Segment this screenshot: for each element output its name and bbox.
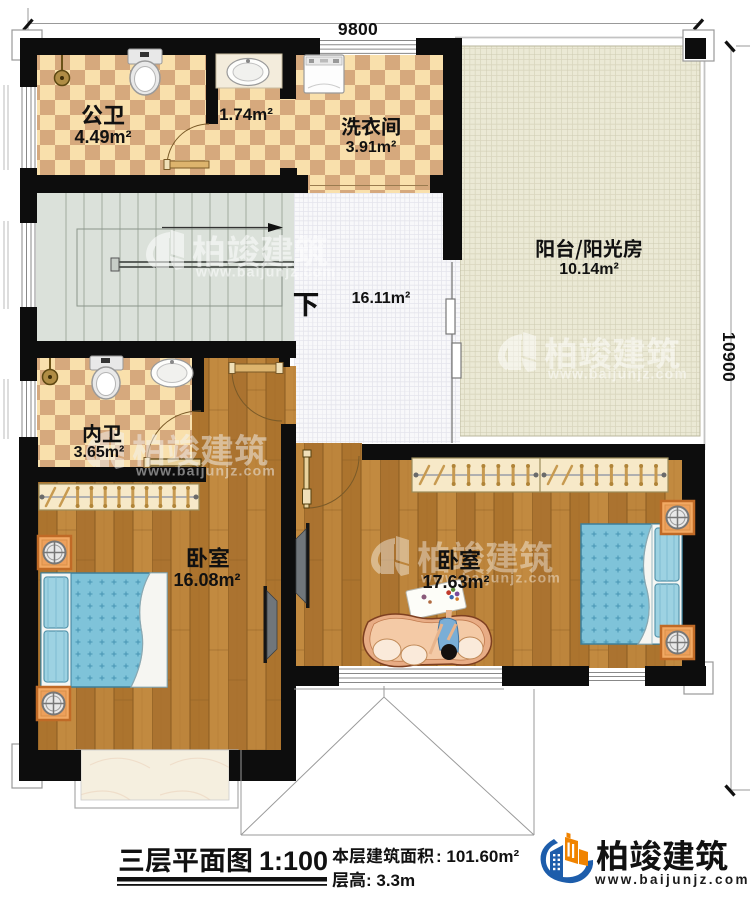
- svg-text:3.91m²: 3.91m²: [346, 139, 397, 156]
- svg-text:16.08m²: 16.08m²: [173, 570, 240, 590]
- svg-text:: 101.60m²: : 101.60m²: [436, 847, 519, 866]
- svg-text:1:100: 1:100: [259, 846, 328, 876]
- svg-text:www.baijunjz.com: www.baijunjz.com: [547, 366, 688, 382]
- svg-text:www.baijunjz.com: www.baijunjz.com: [135, 463, 276, 479]
- svg-text:10900: 10900: [719, 332, 739, 382]
- svg-text:17.63m²: 17.63m²: [422, 572, 489, 592]
- svg-text:4.49m²: 4.49m²: [74, 127, 131, 147]
- svg-text:: 3.3m: : 3.3m: [366, 871, 415, 890]
- svg-text:3.65m²: 3.65m²: [74, 444, 125, 461]
- svg-text:10.14m²: 10.14m²: [559, 261, 619, 278]
- svg-text:9800: 9800: [338, 19, 378, 39]
- svg-text:1.74m²: 1.74m²: [219, 105, 273, 124]
- svg-text:www.baijunjz.com: www.baijunjz.com: [594, 872, 750, 887]
- svg-text:www.baijunjz.com: www.baijunjz.com: [195, 264, 336, 280]
- svg-text:16.11m²: 16.11m²: [352, 290, 411, 307]
